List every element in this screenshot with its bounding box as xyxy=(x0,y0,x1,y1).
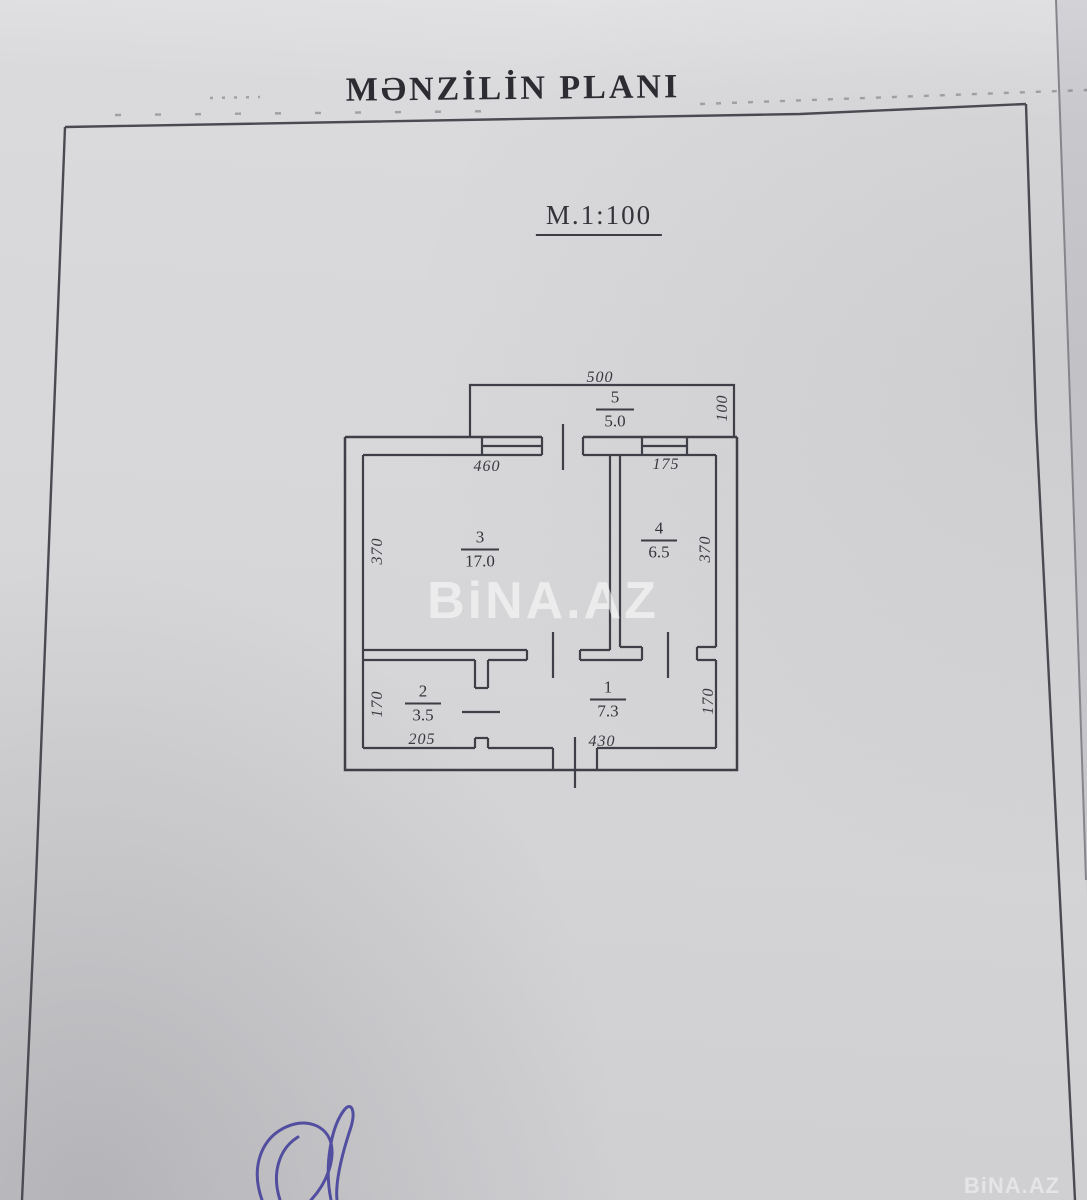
room-area: 7.3 xyxy=(597,703,618,720)
room-area: 5.0 xyxy=(604,413,625,430)
dim-room4-height: 370 xyxy=(698,536,714,563)
room-label-4: 4 6.5 xyxy=(641,520,677,561)
fraction-bar xyxy=(596,409,634,411)
watermark: BiNA.AZ xyxy=(427,575,659,627)
room-number: 2 xyxy=(419,683,428,700)
scanned-floor-plan-page: MƏNZİLİN PLANI M.1:100 500 100 460 175 3… xyxy=(0,0,1087,1200)
dim-balcony-width: 500 xyxy=(587,370,614,386)
room-number: 5 xyxy=(611,389,620,406)
dim-room2-width: 205 xyxy=(409,732,436,748)
room-label-3: 3 17.0 xyxy=(461,529,499,570)
watermark-small: BiNA.AZ xyxy=(964,1175,1060,1197)
room-area: 3.5 xyxy=(412,707,433,724)
dim-room3-height: 370 xyxy=(370,538,386,565)
fraction-bar xyxy=(641,540,677,542)
paper-edge xyxy=(1056,0,1087,900)
dim-balcony-depth: 100 xyxy=(715,395,731,422)
dim-room1-height: 170 xyxy=(701,688,717,715)
room-number: 1 xyxy=(604,679,613,696)
window-room3 xyxy=(482,437,542,455)
dim-room2-height: 170 xyxy=(370,691,386,718)
room-area: 17.0 xyxy=(465,553,495,570)
room-number: 3 xyxy=(476,529,485,546)
room-number: 4 xyxy=(655,520,664,537)
door-balcony xyxy=(563,424,583,470)
scale-label: M.1:100 xyxy=(536,202,662,236)
dim-room4-width: 175 xyxy=(653,457,680,473)
fraction-bar xyxy=(461,549,499,551)
fraction-bar xyxy=(590,699,626,701)
dim-room3-width: 460 xyxy=(474,459,501,475)
room-label-5: 5 5.0 xyxy=(596,389,634,430)
window-room4 xyxy=(642,437,687,455)
dim-room1-width: 430 xyxy=(589,734,616,750)
fraction-bar xyxy=(405,703,441,705)
room-label-1: 1 7.3 xyxy=(590,679,626,720)
room-area: 6.5 xyxy=(648,544,669,561)
room-label-2: 2 3.5 xyxy=(405,683,441,724)
signature xyxy=(257,1106,353,1200)
frame-border xyxy=(22,104,1075,1200)
page-title: MƏNZİLİN PLANI xyxy=(346,70,681,108)
